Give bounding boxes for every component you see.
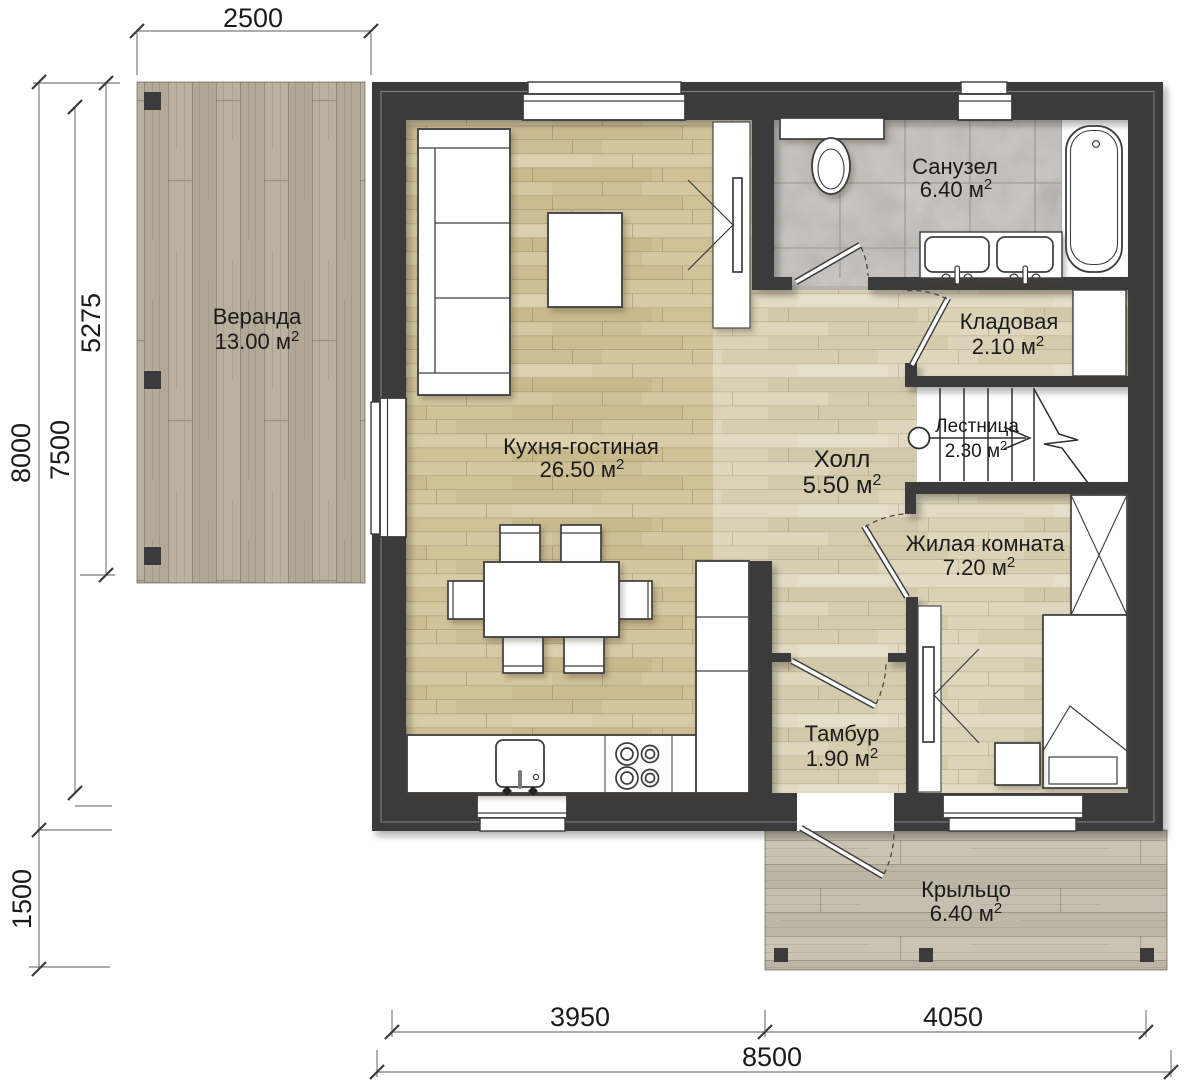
svg-text:2.30 м2: 2.30 м2 xyxy=(945,438,1008,462)
svg-text:Тамбур: Тамбур xyxy=(805,721,880,746)
svg-text:5.50 м2: 5.50 м2 xyxy=(803,472,882,499)
svg-text:1500: 1500 xyxy=(7,869,37,929)
svg-text:Холл: Холл xyxy=(814,446,871,473)
svg-text:Крыльцо: Крыльцо xyxy=(921,877,1011,902)
svg-text:6.40 м2: 6.40 м2 xyxy=(930,900,1002,926)
svg-text:4050: 4050 xyxy=(923,1002,983,1032)
svg-text:26.50 м2: 26.50 м2 xyxy=(540,456,625,482)
svg-text:Лестница: Лестница xyxy=(935,416,1019,437)
svg-text:2.10 м2: 2.10 м2 xyxy=(972,333,1044,359)
svg-text:8000: 8000 xyxy=(6,423,36,483)
svg-text:8500: 8500 xyxy=(742,1042,802,1072)
svg-text:Жилая комната: Жилая комната xyxy=(906,531,1066,556)
svg-text:2500: 2500 xyxy=(223,3,283,33)
svg-text:7500: 7500 xyxy=(45,420,75,480)
svg-text:7.20 м2: 7.20 м2 xyxy=(943,554,1015,580)
svg-text:6.40 м2: 6.40 м2 xyxy=(920,176,992,202)
svg-text:Веранда: Веранда xyxy=(213,304,302,329)
svg-text:13.00 м2: 13.00 м2 xyxy=(215,328,300,354)
svg-text:1.90 м2: 1.90 м2 xyxy=(806,745,878,771)
svg-text:Кладовая: Кладовая xyxy=(960,309,1059,334)
svg-text:Кухня-гостиная: Кухня-гостиная xyxy=(503,434,659,459)
svg-text:5275: 5275 xyxy=(76,293,106,353)
svg-text:3950: 3950 xyxy=(550,1002,610,1032)
